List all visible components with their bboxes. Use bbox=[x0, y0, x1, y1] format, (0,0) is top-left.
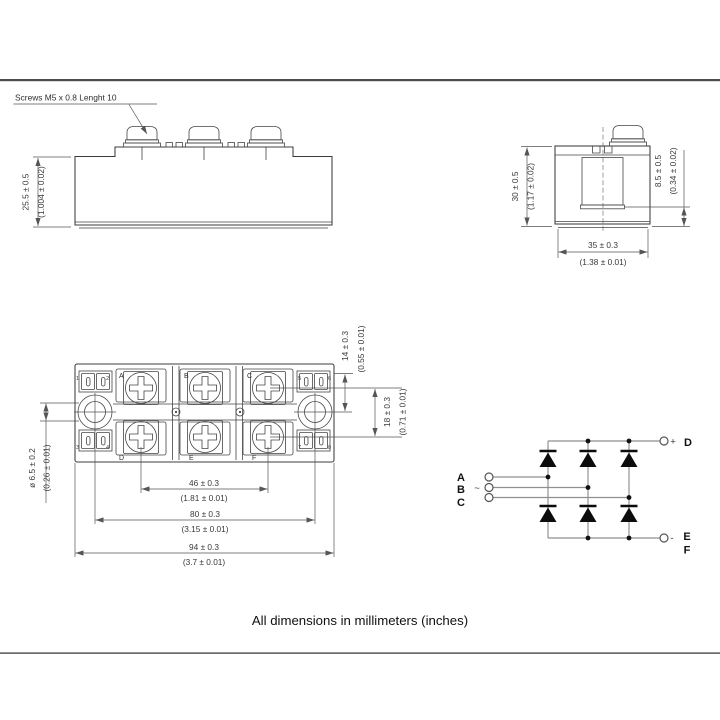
screw-cap-2 bbox=[186, 126, 223, 147]
dim-mm: ø 6.5 ± 0.2 bbox=[27, 448, 37, 488]
circuit-label-B: B bbox=[457, 484, 465, 496]
pin-slot bbox=[87, 437, 91, 446]
dim-mm: 18 ± 0.3 bbox=[382, 397, 392, 427]
dim-tab-8-5: 8.5 ± 0.5 (0.34 ± 0.02) bbox=[625, 147, 690, 226]
diode-lower-2 bbox=[580, 506, 597, 522]
junction-dot bbox=[546, 475, 551, 480]
terminal-label-B: B bbox=[184, 373, 189, 380]
mounting-hole-left bbox=[74, 393, 116, 524]
circuit-label-E: E bbox=[683, 531, 690, 543]
junction-dot bbox=[627, 495, 632, 500]
screw-cap-end bbox=[610, 125, 647, 146]
dim-in: (0.26 ± 0.01) bbox=[42, 444, 52, 491]
note-leader-arrow bbox=[129, 105, 147, 135]
junction-dot bbox=[627, 439, 632, 444]
pin-8: 8 bbox=[328, 445, 331, 451]
circuit-label-F: F bbox=[684, 545, 691, 557]
datasheet-mechanical-drawing: Screws M5 x 0.8 Lenght 10 25.5 ± 0.5 (1.… bbox=[0, 0, 720, 720]
pin-slot bbox=[102, 437, 106, 446]
dim-in: (0.55 ± 0.01) bbox=[356, 325, 366, 372]
channel-rivet-dot bbox=[239, 411, 241, 413]
junction-dot bbox=[586, 485, 591, 490]
dim-in: (1.004 ± 0.02) bbox=[36, 166, 46, 218]
bottom-divider bbox=[0, 653, 720, 654]
pin-pad bbox=[82, 433, 95, 449]
phase-terminal-A bbox=[485, 473, 493, 481]
dim-hole-6-5: ø 6.5 ± 0.2 (0.26 ± 0.01) bbox=[27, 403, 79, 503]
screws-note: Screws M5 x 0.8 Lenght 10 bbox=[14, 93, 158, 135]
pin-6: 6 bbox=[328, 376, 331, 382]
dim-span-80: 80 ± 0.3 (3.15 ± 0.01) bbox=[96, 509, 315, 534]
junction-dot bbox=[627, 536, 632, 541]
dim-mm: 80 ± 0.3 bbox=[190, 509, 220, 519]
drawing-canvas: Screws M5 x 0.8 Lenght 10 25.5 ± 0.5 (1.… bbox=[0, 0, 720, 720]
top-tab bbox=[176, 143, 183, 148]
side-view: 25.5 ± 0.5 (1.004 ± 0.02) bbox=[21, 126, 333, 228]
dim-in: (1.17 ± 0.02) bbox=[526, 163, 536, 210]
diode-lower-1 bbox=[540, 506, 557, 522]
pin-pad bbox=[300, 433, 313, 449]
junction-dot bbox=[586, 439, 591, 444]
terminal-label-D: D bbox=[119, 455, 124, 462]
dim-in: (0.34 ± 0.02) bbox=[668, 147, 678, 194]
phase-terminal-C bbox=[485, 494, 493, 502]
terminal-screw-A bbox=[124, 372, 159, 405]
dim-row-pitch-18: 18 ± 0.3 (0.71 ± 0.01) bbox=[270, 388, 408, 437]
pin-1: 1 bbox=[76, 376, 79, 382]
diode-upper-1 bbox=[540, 451, 557, 467]
dim-mm: 94 ± 0.3 bbox=[189, 542, 219, 552]
dim-in: (1.81 ± 0.01) bbox=[181, 493, 228, 503]
pin-2: 2 bbox=[106, 376, 109, 382]
screws-note-text: Screws M5 x 0.8 Lenght 10 bbox=[15, 93, 117, 103]
pin-pad bbox=[300, 374, 313, 390]
circuit-label-A: A bbox=[457, 472, 465, 484]
top-tab bbox=[166, 143, 173, 148]
top-tab bbox=[228, 143, 235, 148]
pin-slot bbox=[305, 378, 309, 387]
pin-pad bbox=[315, 433, 328, 449]
plus-sign: + bbox=[670, 437, 676, 448]
channel-rivet-dot bbox=[175, 411, 177, 413]
dim-in: (3.7 ± 0.01) bbox=[183, 557, 226, 567]
terminal-screw-B bbox=[188, 372, 223, 405]
dim-mm: 8.5 ± 0.5 bbox=[653, 155, 663, 188]
pin-box bbox=[297, 430, 330, 451]
dim-mm: 14 ± 0.3 bbox=[340, 331, 350, 361]
top-divider bbox=[0, 79, 720, 81]
dim-mm: 25.5 ± 0.5 bbox=[21, 173, 31, 210]
end-view: 30 ± 0.5 (1.17 ± 0.02) 8.5 ± 0.5 (0.34 ±… bbox=[510, 125, 690, 267]
circuit-label-C: C bbox=[457, 497, 465, 509]
dim-height-25-5: 25.5 ± 0.5 (1.004 ± 0.02) bbox=[21, 157, 72, 227]
dc-minus-terminal bbox=[660, 534, 668, 542]
dim-in: (3.15 ± 0.01) bbox=[182, 524, 229, 534]
minus-sign: - bbox=[670, 533, 673, 544]
terminal-bar bbox=[581, 205, 625, 209]
ac-symbol: ~ bbox=[474, 483, 480, 494]
terminal-label-E: E bbox=[189, 455, 194, 462]
pin-box bbox=[297, 371, 330, 392]
diode-upper-2 bbox=[580, 451, 597, 467]
pin-7: 7 bbox=[298, 445, 301, 451]
pin-3: 3 bbox=[76, 445, 79, 451]
pin-pad bbox=[315, 374, 328, 390]
diode-lower-3 bbox=[621, 506, 638, 522]
pin-slot bbox=[320, 378, 324, 387]
dim-in: (0.71 ± 0.01) bbox=[398, 388, 408, 435]
pin-slot bbox=[305, 437, 309, 446]
dim-tab-offset-14: 14 ± 0.3 (0.55 ± 0.01) bbox=[334, 325, 366, 411]
dim-width-35: 35 ± 0.3 (1.38 ± 0.01) bbox=[558, 229, 648, 267]
pin-slot bbox=[87, 378, 91, 387]
top-notch bbox=[605, 147, 613, 154]
dim-mm: 30 ± 0.5 bbox=[510, 171, 520, 201]
junction-dot bbox=[586, 536, 591, 541]
dim-in: (1.38 ± 0.01) bbox=[580, 257, 627, 267]
pin-4: 4 bbox=[106, 445, 109, 451]
terminal-screw-E bbox=[188, 421, 223, 454]
caption-text: All dimensions in millimeters (inches) bbox=[252, 613, 468, 628]
pin-box-bottom-right bbox=[297, 430, 330, 451]
terminal-label-F: F bbox=[252, 455, 256, 462]
terminal-pocket bbox=[582, 158, 623, 206]
dim-mm: 46 ± 0.3 bbox=[189, 478, 219, 488]
top-notch bbox=[593, 147, 601, 154]
terminal-label-C: C bbox=[247, 373, 252, 380]
side-body bbox=[75, 147, 332, 225]
mounting-hole-right bbox=[294, 393, 352, 524]
terminal-label-A: A bbox=[119, 373, 124, 380]
pin-slot bbox=[320, 437, 324, 446]
diode-upper-3 bbox=[621, 451, 638, 467]
circuit-diagram: A B C ~ + D - E F bbox=[457, 437, 692, 557]
phase-terminal-B bbox=[485, 484, 493, 492]
pin-pad bbox=[82, 374, 95, 390]
pin-slot bbox=[102, 378, 106, 387]
screw-cap-1 bbox=[124, 126, 161, 147]
top-tab bbox=[238, 143, 245, 148]
dim-mm: 35 ± 0.3 bbox=[588, 240, 618, 250]
dim-height-30: 30 ± 0.5 (1.17 ± 0.02) bbox=[510, 147, 552, 227]
dc-plus-terminal bbox=[660, 437, 668, 445]
pin-box-top-right bbox=[297, 371, 330, 392]
circuit-label-D: D bbox=[684, 437, 692, 449]
top-view: A B C D E F bbox=[27, 325, 408, 567]
pin-5: 5 bbox=[298, 376, 301, 382]
screw-cap-3 bbox=[248, 126, 285, 147]
